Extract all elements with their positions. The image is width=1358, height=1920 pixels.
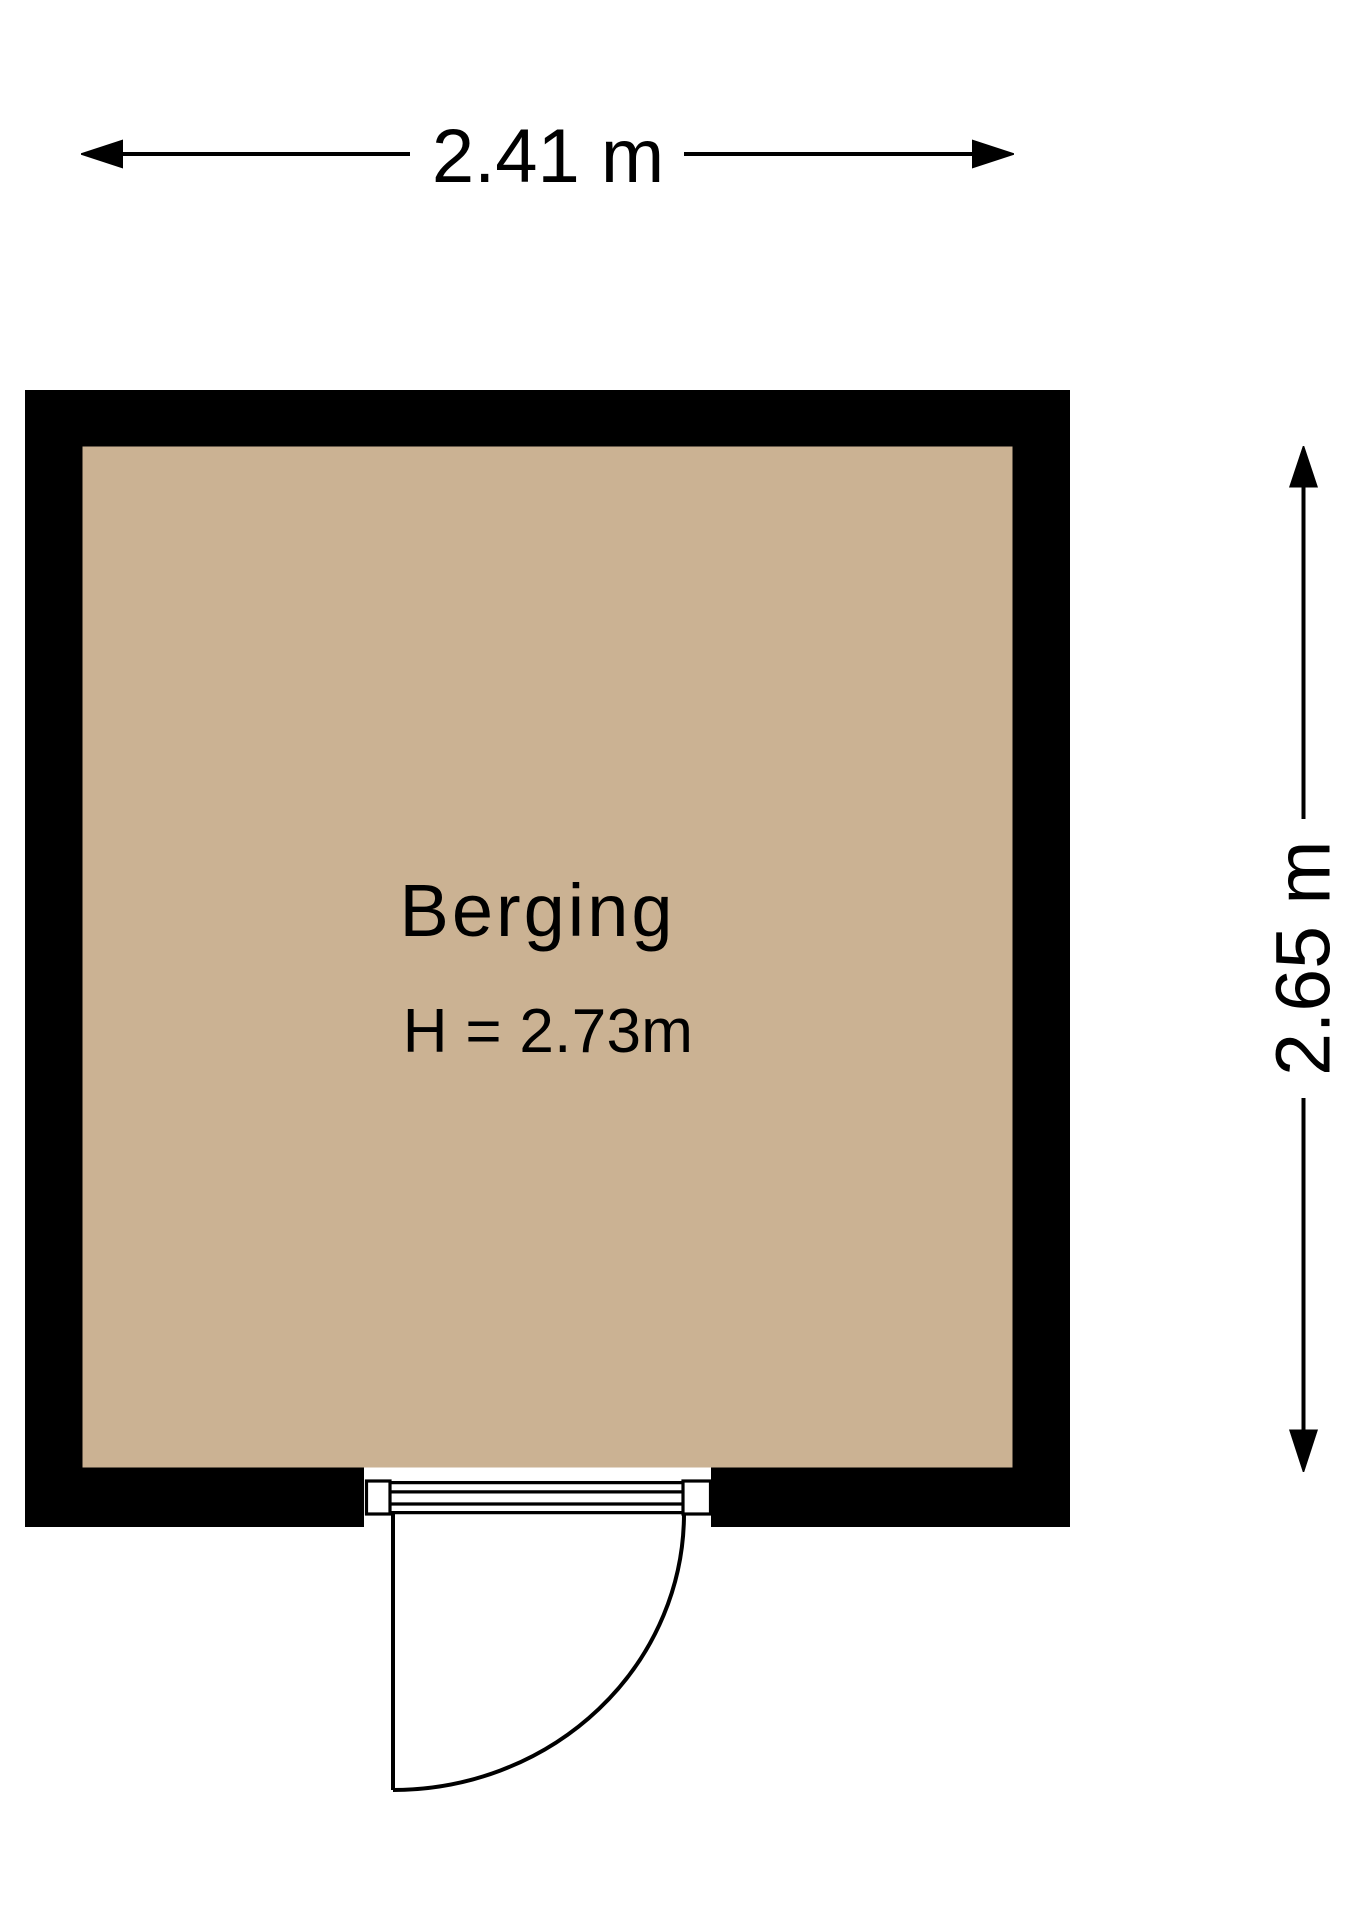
svg-text:2.65 m: 2.65 m bbox=[1260, 840, 1346, 1075]
svg-text:2.41 m: 2.41 m bbox=[432, 114, 664, 199]
svg-text:Berging: Berging bbox=[399, 869, 675, 952]
svg-text:H = 2.73m: H = 2.73m bbox=[403, 997, 693, 1066]
